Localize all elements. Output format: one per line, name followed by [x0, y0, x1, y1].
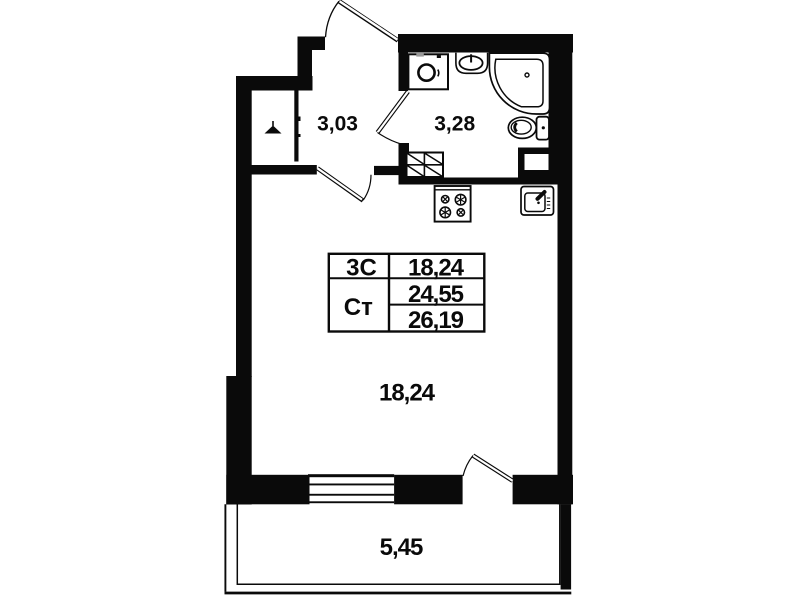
- svg-text:18,24: 18,24: [379, 380, 436, 407]
- svg-text:3,28: 3,28: [434, 113, 475, 136]
- svg-text:3,03: 3,03: [317, 113, 358, 136]
- svg-text:24,55: 24,55: [408, 281, 464, 308]
- svg-text:5,45: 5,45: [380, 534, 423, 561]
- svg-text:18,24: 18,24: [408, 255, 465, 282]
- svg-text:3С: 3С: [346, 255, 377, 282]
- svg-text:Ст: Ст: [344, 294, 373, 321]
- svg-text:26,19: 26,19: [408, 307, 464, 334]
